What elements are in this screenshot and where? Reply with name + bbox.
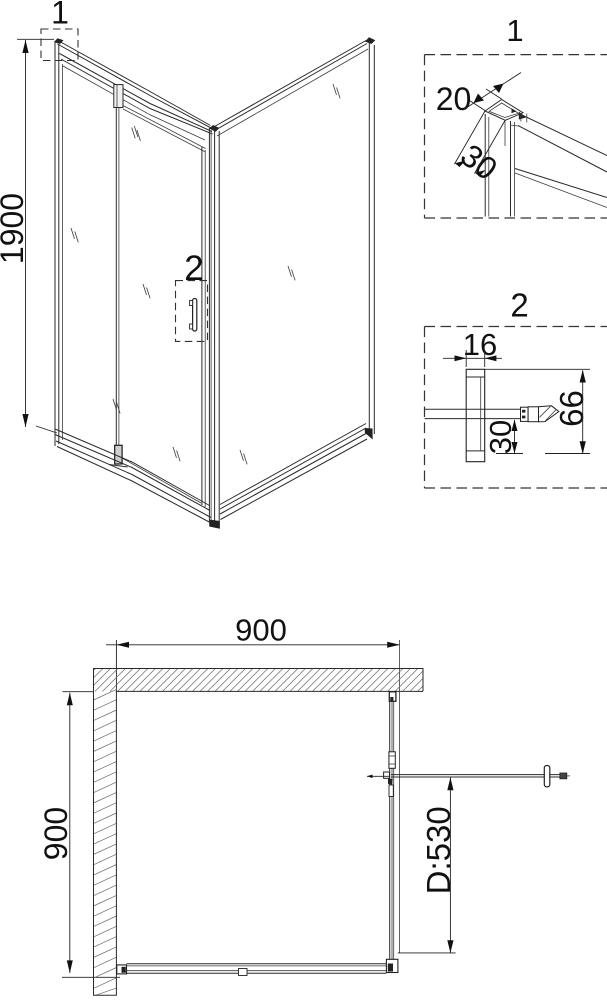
svg-text:30: 30 <box>483 420 518 454</box>
svg-text:1: 1 <box>506 13 523 48</box>
svg-text:D:530: D:530 <box>420 806 457 894</box>
svg-text:900: 900 <box>235 613 287 648</box>
svg-text:1: 1 <box>51 0 69 31</box>
svg-text:2: 2 <box>184 249 203 288</box>
svg-text:66: 66 <box>553 390 590 427</box>
svg-text:2: 2 <box>510 287 528 324</box>
svg-text:20: 20 <box>436 81 472 117</box>
svg-text:900: 900 <box>38 807 74 860</box>
